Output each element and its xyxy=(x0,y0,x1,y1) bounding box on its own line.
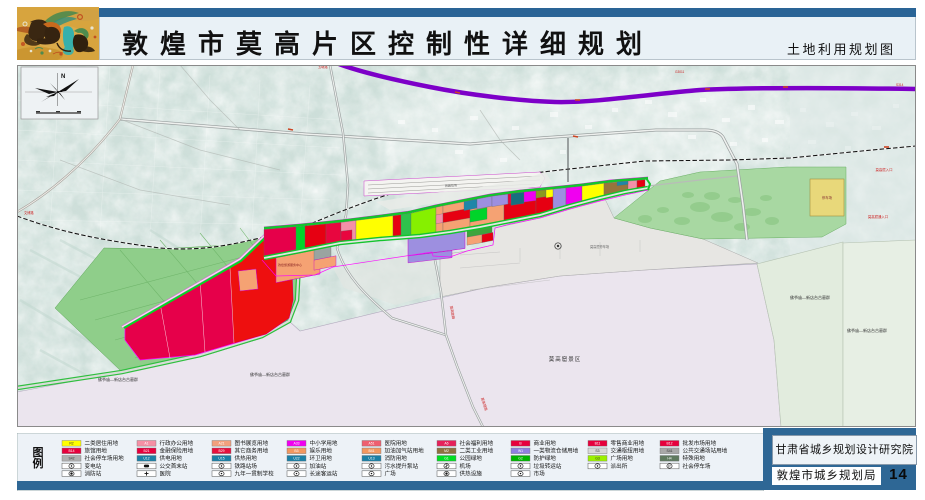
svg-text:二类居住用地: 二类居住用地 xyxy=(85,439,119,447)
svg-text:金融保险用地: 金融保险用地 xyxy=(160,447,194,455)
svg-text:公园绿地: 公园绿地 xyxy=(460,454,483,462)
svg-text:停车场: 停车场 xyxy=(822,195,833,200)
svg-text:B29: B29 xyxy=(218,449,224,453)
svg-text:污水提升泵站: 污水提升泵站 xyxy=(385,462,419,470)
svg-text:B11: B11 xyxy=(595,442,601,446)
svg-text:H4: H4 xyxy=(667,457,671,461)
svg-text:变电站: 变电站 xyxy=(85,462,102,470)
svg-text:公交首末站: 公交首末站 xyxy=(160,462,188,470)
svg-text:市场: 市场 xyxy=(534,469,546,477)
svg-text:莫高窟通入口: 莫高窟通入口 xyxy=(868,214,888,219)
svg-text:文博路: 文博路 xyxy=(24,210,34,215)
svg-text:R2: R2 xyxy=(69,442,73,446)
svg-text:社会福利用地: 社会福利用地 xyxy=(460,439,494,447)
svg-text:B12: B12 xyxy=(666,442,672,446)
svg-text:批发市场用地: 批发市场用地 xyxy=(683,439,717,447)
svg-text:消防站: 消防站 xyxy=(85,469,102,477)
svg-text:供热设施: 供热设施 xyxy=(460,469,483,477)
svg-text:交通枢纽用地: 交通枢纽用地 xyxy=(611,447,645,455)
svg-text:医院: 医院 xyxy=(160,469,172,477)
svg-text:供电用地: 供电用地 xyxy=(160,454,183,462)
svg-text:S3: S3 xyxy=(595,449,599,453)
svg-text:一类物流仓储用地: 一类物流仓储用地 xyxy=(534,447,579,455)
svg-text:铁路站场: 铁路站场 xyxy=(445,182,457,188)
svg-text:长途客运站: 长途客运站 xyxy=(310,469,338,477)
svg-text:莫高窟入口: 莫高窟入口 xyxy=(876,167,893,172)
svg-text:行政办公用地: 行政办公用地 xyxy=(160,439,194,447)
svg-text:社会停车场用地: 社会停车场用地 xyxy=(85,454,125,462)
svg-text:防护绿地: 防护绿地 xyxy=(534,454,557,462)
svg-text:零售商业用地: 零售商业用地 xyxy=(611,439,645,447)
svg-text:铁路站场: 铁路站场 xyxy=(235,462,258,470)
svg-text:加油加气站用地: 加油加气站用地 xyxy=(385,447,425,455)
svg-text:特殊用地: 特殊用地 xyxy=(683,454,706,462)
svg-text:W1: W1 xyxy=(518,449,523,453)
svg-text:敦煌旅游服务中心: 敦煌旅游服务中心 xyxy=(278,262,302,267)
svg-text:A51: A51 xyxy=(368,442,374,446)
svg-text:N: N xyxy=(61,74,65,80)
svg-text:机场: 机场 xyxy=(460,462,472,470)
svg-text:莫高窟停车场: 莫高窟停车场 xyxy=(590,244,609,249)
svg-text:A33: A33 xyxy=(293,442,299,446)
svg-text:B21: B21 xyxy=(143,449,149,453)
svg-text:例: 例 xyxy=(33,456,44,470)
svg-text:U15: U15 xyxy=(218,457,224,461)
svg-text:G2: G2 xyxy=(518,457,523,461)
svg-text:旅馆用地: 旅馆用地 xyxy=(85,447,108,455)
svg-text:商业用地: 商业用地 xyxy=(534,439,557,447)
svg-text:广场: 广场 xyxy=(385,469,397,477)
svg-text:S42: S42 xyxy=(68,457,74,461)
svg-text:二类工业用地: 二类工业用地 xyxy=(460,447,494,455)
svg-text:社会停车场: 社会停车场 xyxy=(683,462,711,470)
svg-text:九年一贯制学校: 九年一贯制学校 xyxy=(235,469,275,477)
svg-text:派出所: 派出所 xyxy=(611,462,628,470)
svg-text:加油站: 加油站 xyxy=(310,462,327,470)
svg-text:莫高窟景区: 莫高窟景区 xyxy=(549,355,582,363)
svg-text:B41: B41 xyxy=(368,449,374,453)
svg-text:医院用地: 医院用地 xyxy=(385,439,408,447)
svg-text:垃圾转运站: 垃圾转运站 xyxy=(534,462,562,470)
svg-text:U22: U22 xyxy=(293,457,299,461)
svg-text:A1: A1 xyxy=(144,442,148,446)
svg-text:供热用地: 供热用地 xyxy=(235,454,258,462)
svg-text:U13: U13 xyxy=(368,457,374,461)
svg-text:消防用地: 消防用地 xyxy=(385,454,408,462)
svg-text:娱乐用地: 娱乐用地 xyxy=(310,447,333,455)
svg-text:A21: A21 xyxy=(218,442,224,446)
svg-text:M2: M2 xyxy=(444,449,449,453)
svg-text:其它商务用地: 其它商务用地 xyxy=(235,447,269,455)
svg-text:G3: G3 xyxy=(595,457,600,461)
svg-text:B3: B3 xyxy=(294,449,298,453)
svg-text:广场用地: 广场用地 xyxy=(611,454,634,462)
svg-text:佛爷庙—新店台古墓群: 佛爷庙—新店台古墓群 xyxy=(250,371,290,377)
svg-text:佛爷庙—新店台古墓群: 佛爷庙—新店台古墓群 xyxy=(98,376,138,382)
svg-text:中小学用地: 中小学用地 xyxy=(310,439,338,447)
svg-text:S314: S314 xyxy=(896,83,904,87)
svg-text:公共交通场站用地: 公共交通场站用地 xyxy=(683,447,728,455)
svg-text:G1: G1 xyxy=(444,457,449,461)
svg-text:图书展览用地: 图书展览用地 xyxy=(235,439,269,447)
svg-text:佛爷庙—新店台古墓群: 佛爷庙—新店台古墓群 xyxy=(847,327,887,333)
svg-text:B14: B14 xyxy=(68,449,74,453)
svg-text:A6: A6 xyxy=(444,442,448,446)
svg-text:G3011: G3011 xyxy=(675,70,685,74)
svg-text:S41: S41 xyxy=(666,449,672,453)
svg-text:环卫用地: 环卫用地 xyxy=(310,454,333,462)
svg-text:U12: U12 xyxy=(143,457,149,461)
svg-text:佛爷庙—新店台古墓群: 佛爷庙—新店台古墓群 xyxy=(790,294,830,300)
